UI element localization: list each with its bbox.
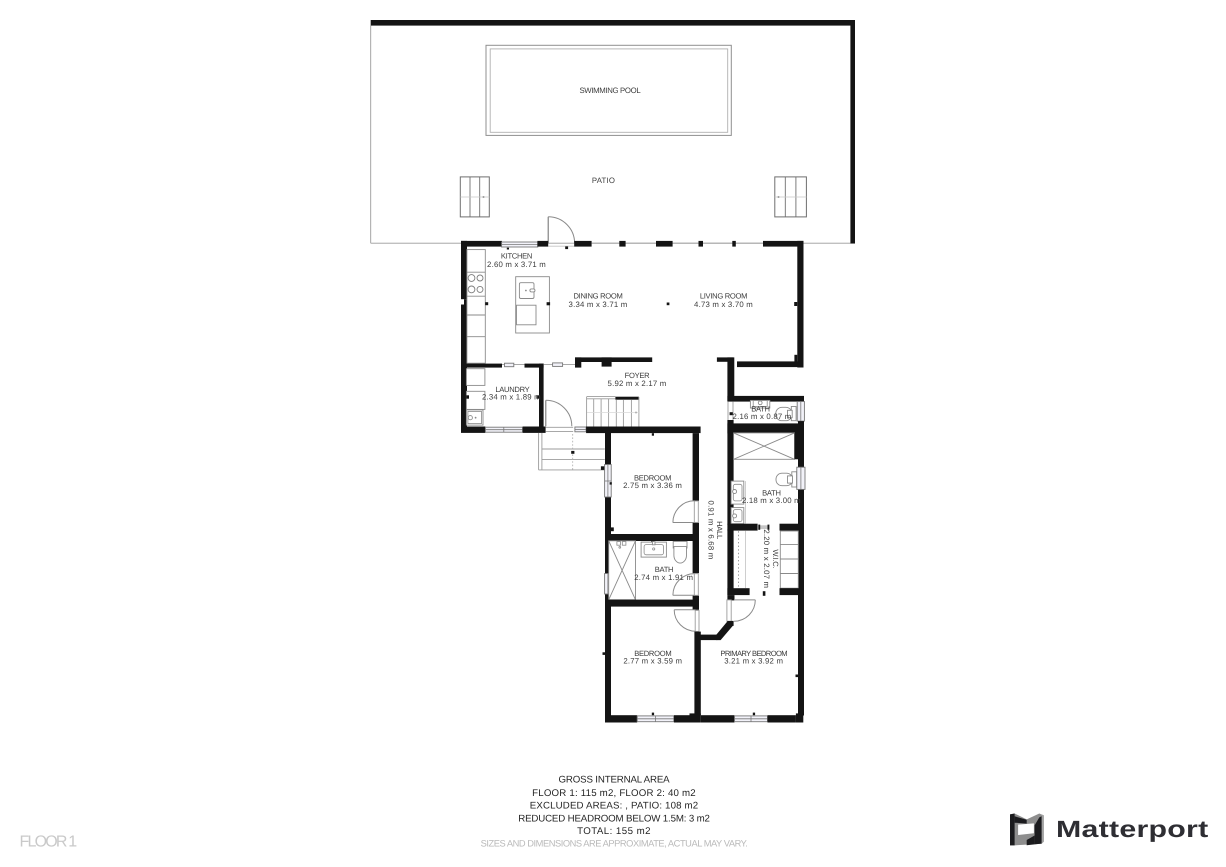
svg-text:FLOOR 1: FLOOR 1 (20, 833, 78, 850)
svg-text:0.91 m x 6.68 m: 0.91 m x 6.68 m (707, 501, 716, 560)
svg-text:2.18 m x 3.00 m: 2.18 m x 3.00 m (742, 496, 801, 505)
svg-text:SIZES AND DIMENSIONS ARE APPRO: SIZES AND DIMENSIONS ARE APPROXIMATE, AC… (481, 838, 748, 848)
svg-text:3.34 m x 3.71 m: 3.34 m x 3.71 m (569, 300, 628, 309)
svg-text:TOTAL: 155 m2: TOTAL: 155 m2 (577, 826, 651, 837)
svg-text:2.77 m x 3.59 m: 2.77 m x 3.59 m (623, 657, 682, 666)
svg-text:PATIO: PATIO (592, 176, 615, 185)
svg-text:Matterport: Matterport (1056, 816, 1208, 842)
svg-text:FLOOR 1: 115 m2, FLOOR 2: 40 m: FLOOR 1: 115 m2, FLOOR 2: 40 m2 (532, 788, 696, 799)
svg-text:3.21 m x 3.92 m: 3.21 m x 3.92 m (724, 657, 783, 666)
svg-text:2.60 m x 3.71 m: 2.60 m x 3.71 m (487, 260, 546, 269)
svg-text:4.73 m x 3.70 m: 4.73 m x 3.70 m (694, 300, 753, 309)
svg-text:REDUCED HEADROOM BELOW 1.5M: 3: REDUCED HEADROOM BELOW 1.5M: 3 m2 (518, 813, 710, 824)
svg-text:5.92 m x 2.17 m: 5.92 m x 2.17 m (608, 379, 667, 388)
svg-text:2.34 m x 1.89 m: 2.34 m x 1.89 m (482, 393, 541, 402)
svg-text:2.75 m x 3.36 m: 2.75 m x 3.36 m (623, 481, 682, 490)
svg-text:2.16 m x 0.87 m: 2.16 m x 0.87 m (733, 412, 792, 421)
svg-text:EXCLUDED AREAS: , PATIO: 108 m: EXCLUDED AREAS: , PATIO: 108 m2 (530, 801, 699, 812)
svg-text:2.74 m x 1.91 m: 2.74 m x 1.91 m (634, 573, 693, 582)
svg-text:2.20 m x 2.07 m: 2.20 m x 2.07 m (762, 529, 771, 588)
svg-text:GROSS INTERNAL AREA: GROSS INTERNAL AREA (559, 774, 671, 785)
svg-text:SWIMMING POOL: SWIMMING POOL (579, 86, 641, 95)
